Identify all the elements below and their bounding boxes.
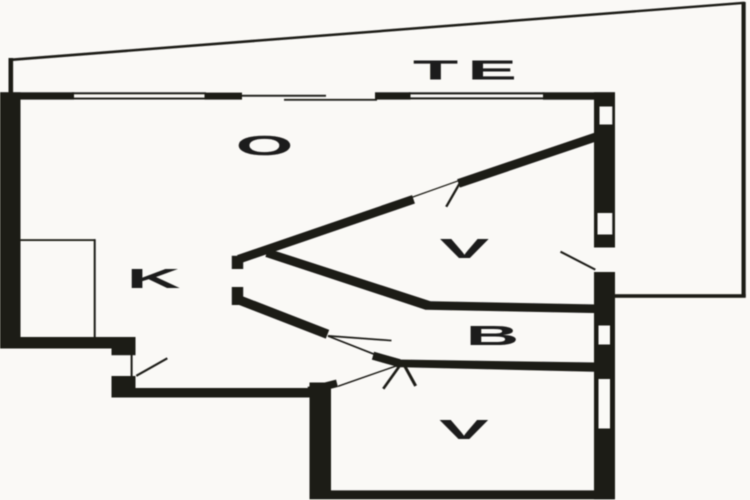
svg-text:O: O bbox=[236, 130, 294, 161]
svg-text:V: V bbox=[440, 233, 490, 264]
svg-text:V: V bbox=[439, 414, 489, 445]
svg-text:B: B bbox=[466, 320, 520, 351]
svg-text:TE: TE bbox=[413, 54, 526, 85]
svg-text:K: K bbox=[127, 263, 181, 294]
